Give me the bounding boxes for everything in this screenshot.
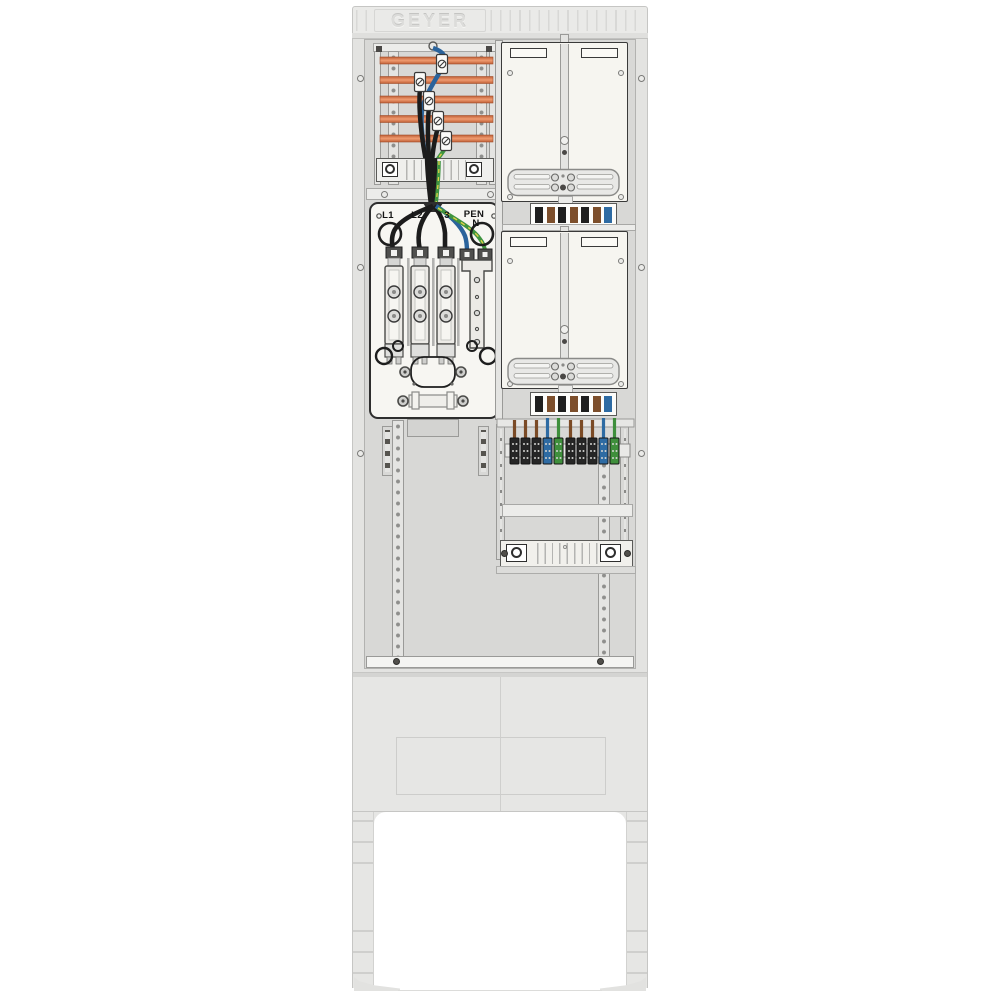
meter-bracket-1 xyxy=(507,168,620,198)
terminal-black xyxy=(535,207,543,223)
terminal-blue xyxy=(604,207,612,223)
pen-n-busbar xyxy=(460,249,492,348)
flange-screw xyxy=(638,450,645,457)
panel-screw xyxy=(618,258,624,264)
terminal-black xyxy=(558,207,566,223)
terminal-brown xyxy=(570,207,578,223)
panel-screw xyxy=(507,70,513,76)
round-clamp xyxy=(469,164,479,174)
flange-screw xyxy=(638,264,645,271)
meter-bracket-2 xyxy=(507,357,620,387)
strip-base-bar xyxy=(496,566,636,574)
terminal-black xyxy=(558,396,566,412)
divider-screw xyxy=(381,191,388,198)
ground-line xyxy=(398,990,602,991)
rail-bolt xyxy=(393,658,400,665)
panel-screw xyxy=(618,70,624,76)
label-L2: L2 xyxy=(409,211,425,221)
divider-screw xyxy=(487,191,494,198)
terminal-brown xyxy=(547,396,555,412)
strip-bolt xyxy=(624,550,631,557)
terminal-black xyxy=(535,396,543,412)
meter-slot xyxy=(510,237,547,247)
base-inner-frame xyxy=(396,737,606,795)
terminal-black xyxy=(581,207,589,223)
right-leg xyxy=(626,812,648,988)
terminal-brown xyxy=(593,207,601,223)
base-cutout xyxy=(374,812,626,824)
connection-box-graphic xyxy=(369,202,499,419)
meter-slot xyxy=(510,48,547,58)
round-clamp xyxy=(385,164,395,174)
label-L1: L1 xyxy=(380,211,396,221)
flange-screw xyxy=(357,450,364,457)
rail-hole xyxy=(560,325,569,334)
terminal-brown xyxy=(593,396,601,412)
round-clamp xyxy=(511,547,522,558)
rail-bolt xyxy=(597,658,604,665)
flange-screw xyxy=(638,75,645,82)
distribution-terminals-graphic xyxy=(496,415,636,475)
strip-center-hole xyxy=(563,545,567,549)
meter-slot xyxy=(581,237,618,247)
brand-logo: GEYER xyxy=(375,10,485,31)
cable-bundle xyxy=(415,150,455,206)
logo-plate: GEYER xyxy=(374,9,486,32)
flange-screw xyxy=(357,75,364,82)
panel-divider-rail xyxy=(502,224,636,231)
left-leg xyxy=(352,812,374,988)
terminal-black xyxy=(581,396,589,412)
base-cabinet xyxy=(352,672,648,812)
fuse-holders xyxy=(385,247,455,364)
label-L3: L3 xyxy=(436,211,452,221)
left-mounting-rail xyxy=(392,420,404,666)
label-N: N xyxy=(468,219,484,229)
terminal-blue xyxy=(604,396,612,412)
panel-screw xyxy=(507,258,513,264)
strip-bolt xyxy=(501,550,508,557)
rail-hole xyxy=(560,136,569,145)
meter-slot xyxy=(581,48,618,58)
notch-strip xyxy=(478,426,489,476)
meter-terminal-strip-2 xyxy=(530,392,617,416)
rail-dot xyxy=(562,339,567,344)
product-image-meter-pillar: GEYER xyxy=(0,0,1000,1000)
interior-bottom-rail xyxy=(366,656,634,668)
rail-dot xyxy=(562,150,567,155)
lower-horizontal-rail xyxy=(502,504,633,517)
box-lower-plate xyxy=(407,419,459,437)
terminal-brown xyxy=(570,396,578,412)
flange-screw xyxy=(357,264,364,271)
terminal-brown xyxy=(547,207,555,223)
round-clamp xyxy=(605,547,616,558)
